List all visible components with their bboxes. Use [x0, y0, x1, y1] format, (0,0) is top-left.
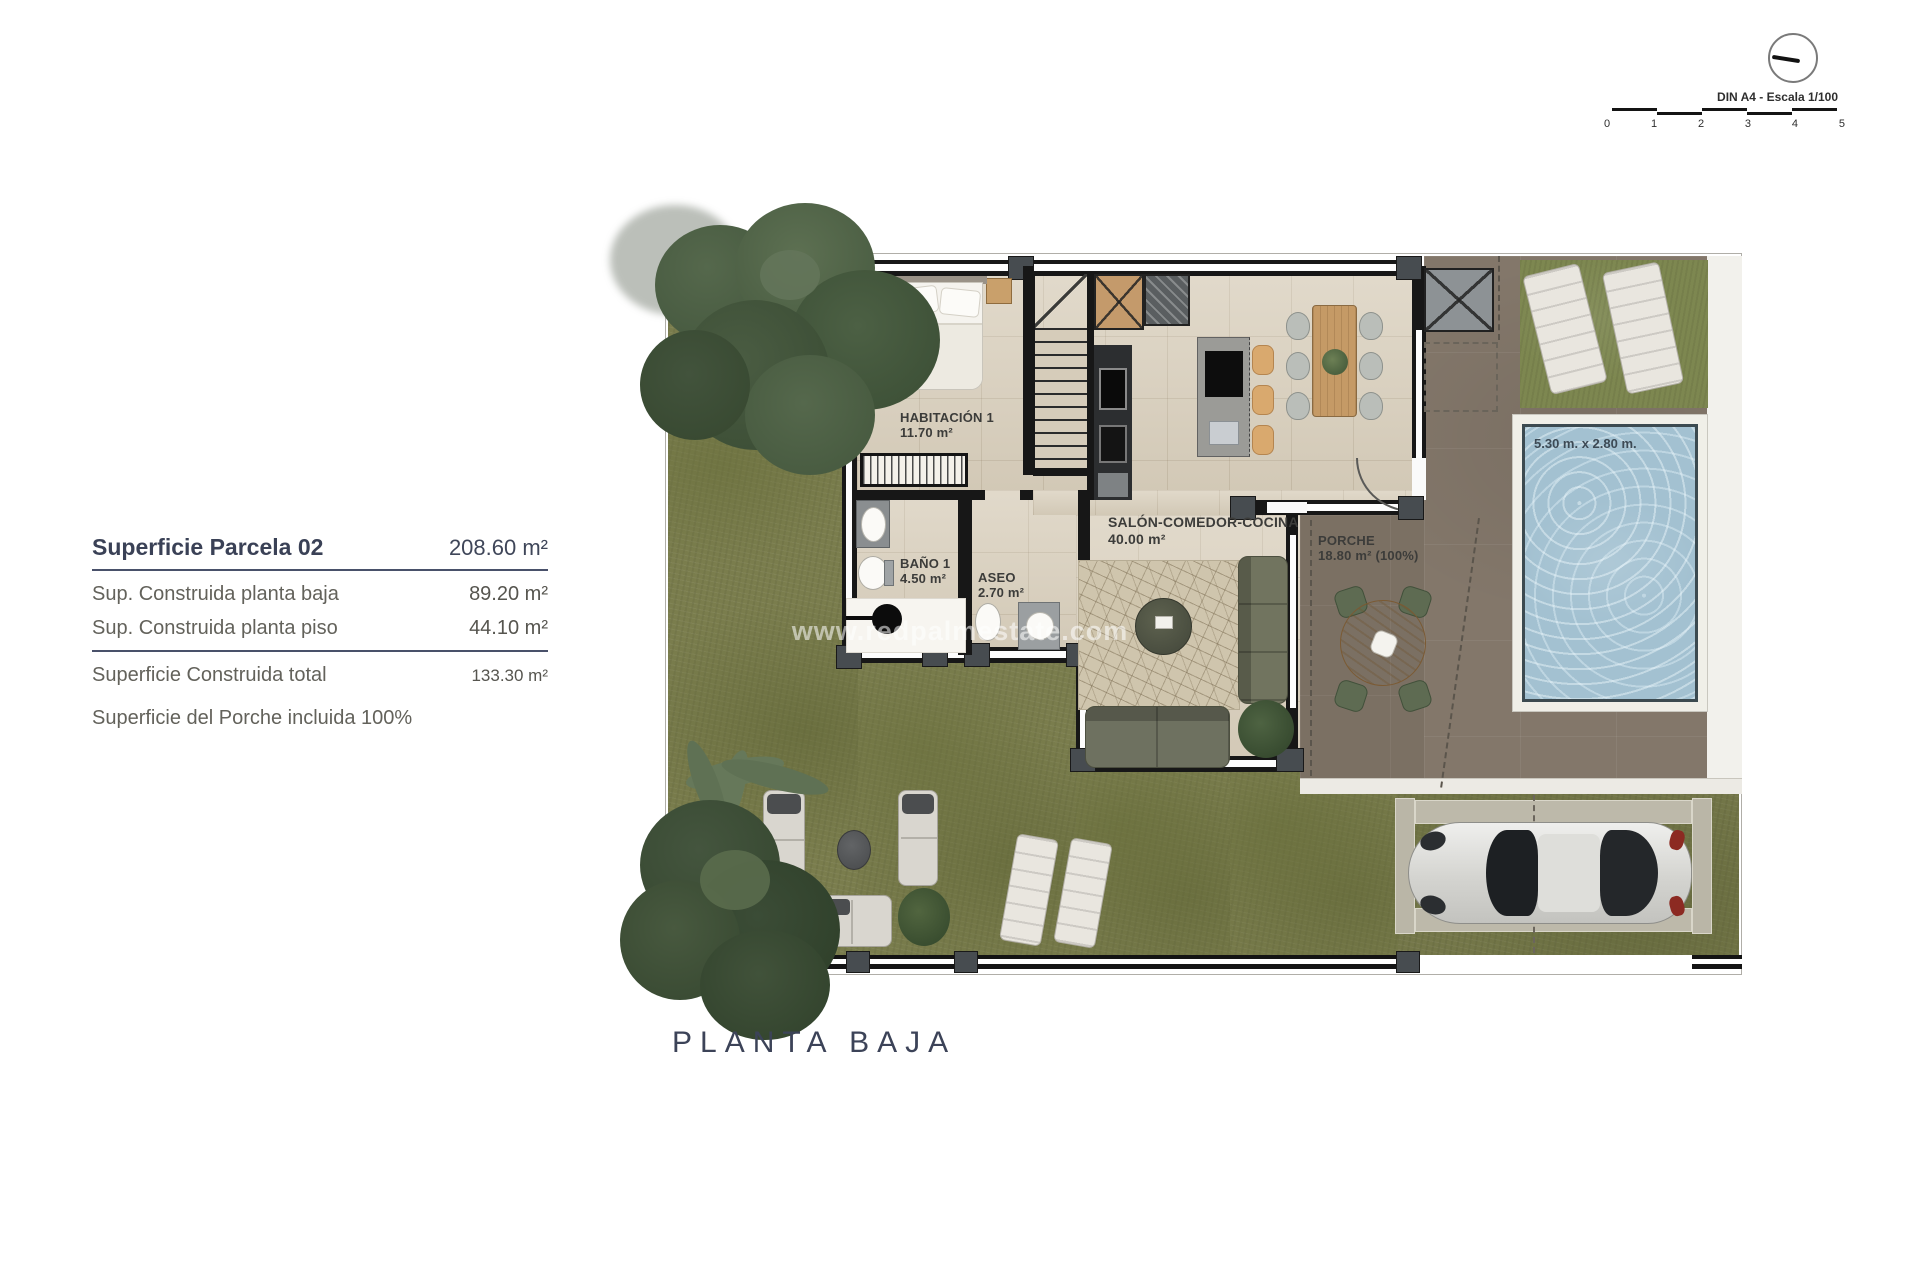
garden-sofa: [898, 790, 938, 886]
porch-doorway: [1267, 500, 1307, 515]
row-label: Sup. Construida planta baja: [92, 583, 339, 606]
porch-door-opening: [1412, 458, 1426, 500]
garden-fence: [1692, 955, 1742, 969]
sofa-headrest: [902, 794, 934, 814]
porch-note: Superficie del Porche incluida 100%: [92, 707, 412, 729]
parasol-base-icon: [1368, 628, 1399, 659]
entry-boundary-dashed: [1498, 256, 1500, 340]
room-label-bano: BAÑO 1 4.50 m²: [900, 556, 950, 587]
scale-tick: 4: [1792, 118, 1798, 130]
toilet-tank: [884, 560, 894, 586]
total-value: 133.30 m²: [471, 666, 548, 686]
room-label-aseo: ASEO 2.70 m²: [978, 570, 1024, 601]
dining-chair: [1359, 392, 1383, 420]
room-name: PORCHE: [1318, 533, 1419, 548]
room-label-salon: SALÓN-COMEDOR-COCINA 40.00 m²: [1108, 514, 1299, 547]
room-area: 2.70 m²: [978, 585, 1024, 600]
table-plant-icon: [1322, 349, 1348, 375]
panel-total-row: Superficie Construida total 133.30 m²: [92, 664, 548, 687]
bathroom-sink: [856, 500, 890, 548]
panel-title: Superficie Parcela 02: [92, 534, 323, 561]
entry-vestibule: [1424, 268, 1494, 332]
porch-table: [1340, 600, 1426, 686]
sink-basin-icon: [861, 507, 886, 542]
fence-post: [954, 951, 978, 973]
bathroom-north-wall: [857, 490, 985, 500]
room-area: 40.00 m²: [1108, 531, 1299, 548]
tree-northwest: [600, 185, 960, 485]
panel-note-row: Superficie del Porche incluida 100%: [92, 707, 548, 730]
scale-caption: DIN A4 - Escala 1/100: [1610, 90, 1838, 105]
room-area: 18.80 m² (100%): [1318, 548, 1419, 563]
surface-info-panel: Superficie Parcela 02 208.60 m² Sup. Con…: [92, 534, 548, 730]
panel-divider: [92, 650, 548, 652]
garden-bush-icon: [898, 888, 950, 946]
driveway-curb: [1692, 798, 1712, 934]
car-windshield: [1486, 830, 1538, 916]
car: [1408, 818, 1692, 928]
wall-pillar: [1398, 496, 1424, 520]
room-name: SALÓN-COMEDOR-COCINA: [1108, 514, 1299, 531]
bathroom-north-wall: [1020, 490, 1033, 500]
scale-ticks: 0 1 2 3 4 5: [1604, 118, 1845, 130]
room-area: 4.50 m²: [900, 571, 950, 586]
panel-title-value: 208.60 m²: [449, 535, 548, 561]
room-label-porche: PORCHE 18.80 m² (100%): [1318, 533, 1419, 564]
scale-tick: 5: [1839, 118, 1845, 130]
bar-stool: [1252, 425, 1274, 455]
staircase-cut-line: [1033, 274, 1087, 328]
total-label: Superficie Construida total: [92, 664, 327, 687]
room-name: BAÑO 1: [900, 556, 950, 571]
dining-table: [1312, 305, 1357, 417]
fence-post: [1396, 951, 1420, 973]
row-label: Sup. Construida planta piso: [92, 617, 338, 640]
row-value: 89.20 m²: [469, 583, 548, 606]
panel-row: Sup. Construida planta baja 89.20 m²: [92, 583, 548, 606]
scale-tick: 1: [1651, 118, 1657, 130]
panel-divider: [92, 569, 548, 571]
panel-title-row: Superficie Parcela 02 208.60 m²: [92, 534, 548, 561]
dining-chair: [1286, 312, 1310, 340]
bar-stool: [1252, 385, 1274, 415]
swimming-pool: [1522, 424, 1698, 702]
side-walkway: [1707, 256, 1742, 778]
scale-tick: 3: [1745, 118, 1751, 130]
car-roof: [1538, 834, 1600, 912]
sofa: [1238, 556, 1288, 704]
bar-stool: [1252, 345, 1274, 375]
cushion-seam: [901, 837, 937, 839]
row-value: 44.10 m²: [469, 617, 548, 640]
stair-wall: [1028, 274, 1035, 475]
scale-tick: 2: [1698, 118, 1704, 130]
kitchen-island: [1197, 337, 1250, 457]
dining-chair: [1359, 352, 1383, 380]
dining-chair: [1359, 312, 1383, 340]
cooktop-icon: [1205, 351, 1243, 397]
floor-plan-page: DIN A4 - Escala 1/100 0 1 2 3 4 5 Superf…: [0, 0, 1920, 1280]
room-name: ASEO: [978, 570, 1024, 585]
stair-wall: [1033, 468, 1089, 476]
stair-wall: [1087, 274, 1094, 500]
fridge-icon: [1099, 425, 1127, 463]
plan-title: PLANTA BAJA: [672, 1026, 956, 1060]
oven-icon: [1099, 368, 1127, 410]
indoor-plant-icon: [1238, 700, 1294, 758]
loveseat-sofa: [1085, 706, 1230, 768]
tree-southwest: [600, 730, 880, 1040]
wall-pillar: [1396, 256, 1422, 280]
panel-row: Sup. Construida planta piso 44.10 m²: [92, 617, 548, 640]
staircase: [1033, 328, 1087, 475]
scale-tick: 0: [1604, 118, 1610, 130]
north-needle-icon: [1772, 55, 1800, 63]
watermark: www.redpalmestate.com: [710, 616, 1210, 647]
porch-boundary-dashed: [1310, 520, 1312, 776]
kitchen-counter: [1098, 473, 1128, 497]
north-indicator-icon: [1768, 33, 1818, 83]
nightstand: [986, 278, 1012, 304]
kitchen-tall-units: [1094, 345, 1132, 500]
dining-chair: [1286, 392, 1310, 420]
pool-dimensions-label: 5.30 m. x 2.80 m.: [1534, 436, 1684, 451]
terrace-step-edge: [1300, 778, 1742, 794]
scale-bar: [1612, 108, 1837, 116]
stair-landing: [1094, 274, 1144, 330]
entry-closet: [1144, 274, 1190, 326]
entry-step-dashed: [1424, 342, 1498, 412]
island-sink-icon: [1209, 421, 1239, 445]
dining-chair: [1286, 352, 1310, 380]
garden-grass-south: [1230, 772, 1398, 956]
